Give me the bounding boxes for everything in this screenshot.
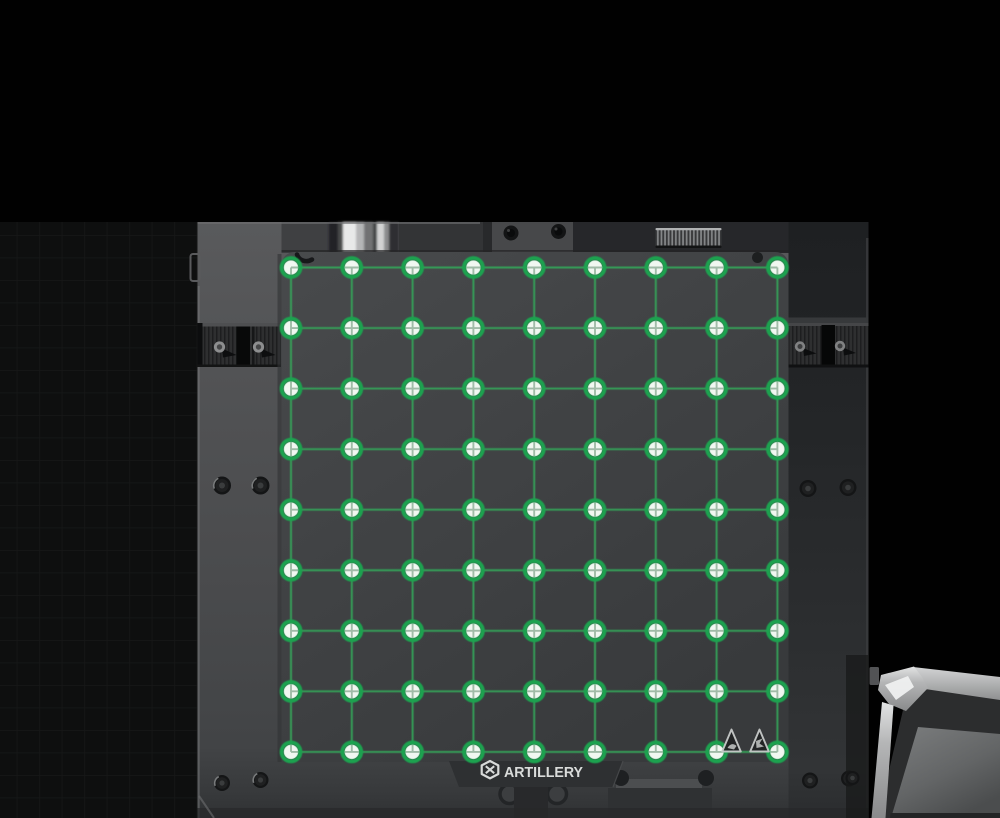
svg-text:ARTILLERY: ARTILLERY [504, 764, 583, 781]
